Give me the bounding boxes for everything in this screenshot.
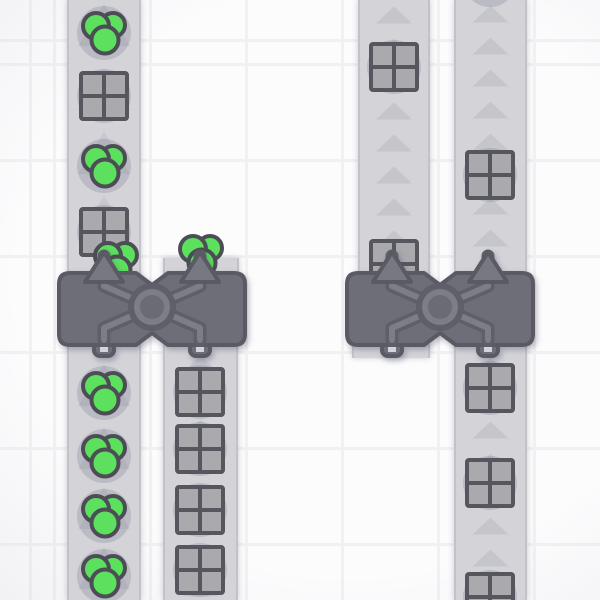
game-scene — [0, 0, 600, 600]
belt-arrow-icon — [376, 103, 412, 120]
belt-arrow-icon — [473, 70, 509, 87]
conveyor-belt[interactable] — [454, 0, 527, 280]
crate-shape — [173, 483, 227, 537]
output-arrow-icon — [181, 252, 219, 282]
belt-arrow-icon — [473, 102, 509, 119]
circle-cluster-shape — [75, 366, 133, 420]
balancer-building[interactable] — [344, 244, 536, 362]
center-ring-icon — [128, 283, 176, 331]
crate-shape — [173, 365, 227, 419]
circle-cluster-shape — [75, 139, 133, 193]
crate-shape — [173, 422, 227, 476]
belt-arrow-icon — [376, 7, 412, 24]
crate-shape — [463, 361, 517, 415]
crate-shape — [463, 148, 517, 202]
circle-cluster-shape — [75, 549, 133, 600]
output-arrow-icon — [469, 252, 507, 282]
belt-arrow-icon — [376, 199, 412, 216]
circle-cluster-shape — [75, 489, 133, 543]
belt-arrow-icon — [473, 38, 509, 55]
balancer-building[interactable] — [56, 244, 248, 362]
crate-shape — [463, 456, 517, 510]
belt-arrow-icon — [473, 518, 509, 535]
belt-arrow-icon — [473, 550, 509, 567]
balancer-sprite — [56, 244, 248, 362]
belt-arrow-icon — [376, 167, 412, 184]
output-arrow-icon — [373, 252, 411, 282]
crate-shape — [463, 570, 517, 600]
belt-arrow-icon — [473, 6, 509, 23]
crate-shape — [173, 543, 227, 597]
crate-shape — [367, 40, 421, 94]
belt-arrow-icon — [376, 135, 412, 152]
center-ring-icon — [416, 283, 464, 331]
crate-shape — [77, 69, 131, 123]
circle-cluster-shape — [75, 429, 133, 483]
output-arrow-icon — [85, 252, 123, 282]
game-viewport[interactable] — [0, 0, 600, 600]
circle-cluster-shape — [75, 6, 133, 60]
belt-arrow-icon — [473, 422, 509, 439]
balancer-sprite — [344, 244, 536, 362]
